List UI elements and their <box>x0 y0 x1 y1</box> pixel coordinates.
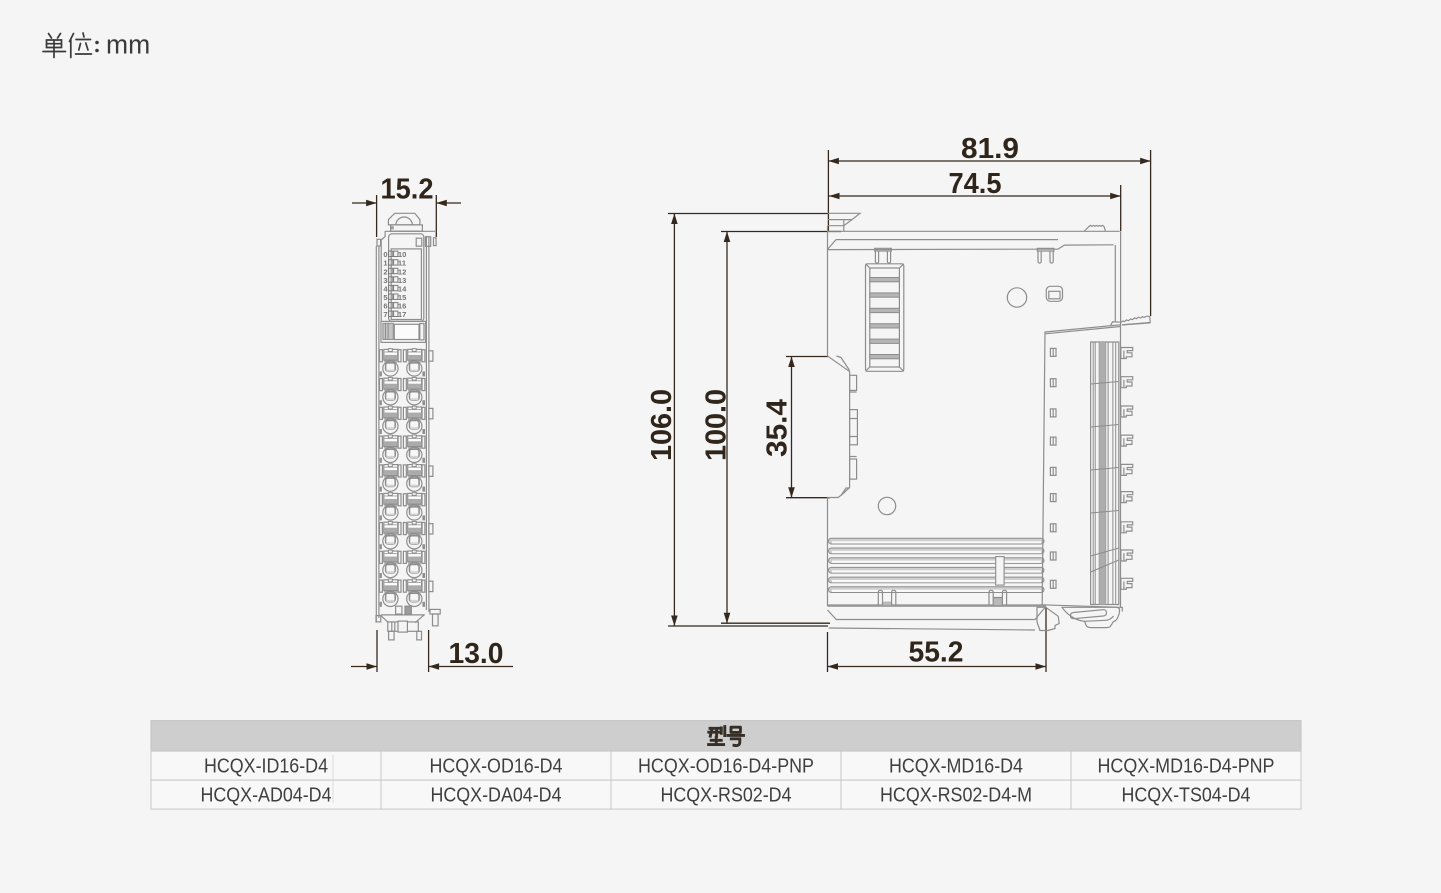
svg-text:35.4: 35.4 <box>762 399 794 457</box>
svg-text:HCQX-OD16-D4: HCQX-OD16-D4 <box>430 756 563 778</box>
svg-text:HCQX-MD16-D4: HCQX-MD16-D4 <box>889 756 1023 778</box>
svg-text:HCQX-OD16-D4-PNP: HCQX-OD16-D4-PNP <box>638 756 814 778</box>
svg-text:74.5: 74.5 <box>949 168 1002 200</box>
svg-text:mm: mm <box>106 30 150 60</box>
svg-text:13.0: 13.0 <box>449 638 504 670</box>
svg-text:17: 17 <box>398 310 406 319</box>
svg-text:100.0: 100.0 <box>701 389 733 461</box>
svg-text:7: 7 <box>383 310 387 319</box>
svg-text:HCQX-RS02-D4-M: HCQX-RS02-D4-M <box>880 785 1032 807</box>
svg-text:55.2: 55.2 <box>909 637 964 669</box>
svg-text:81.9: 81.9 <box>961 133 1019 165</box>
svg-text:HCQX-AD04-D4: HCQX-AD04-D4 <box>201 785 332 807</box>
svg-text:106.0: 106.0 <box>646 389 678 461</box>
svg-text:HCQX-DA04-D4: HCQX-DA04-D4 <box>431 785 562 807</box>
svg-text:HCQX-ID16-D4: HCQX-ID16-D4 <box>204 756 328 778</box>
svg-text:HCQX-MD16-D4-PNP: HCQX-MD16-D4-PNP <box>1098 756 1275 778</box>
svg-text:HCQX-RS02-D4: HCQX-RS02-D4 <box>661 785 792 807</box>
svg-text:HCQX-TS04-D4: HCQX-TS04-D4 <box>1122 785 1251 807</box>
svg-text:15.2: 15.2 <box>381 174 434 206</box>
